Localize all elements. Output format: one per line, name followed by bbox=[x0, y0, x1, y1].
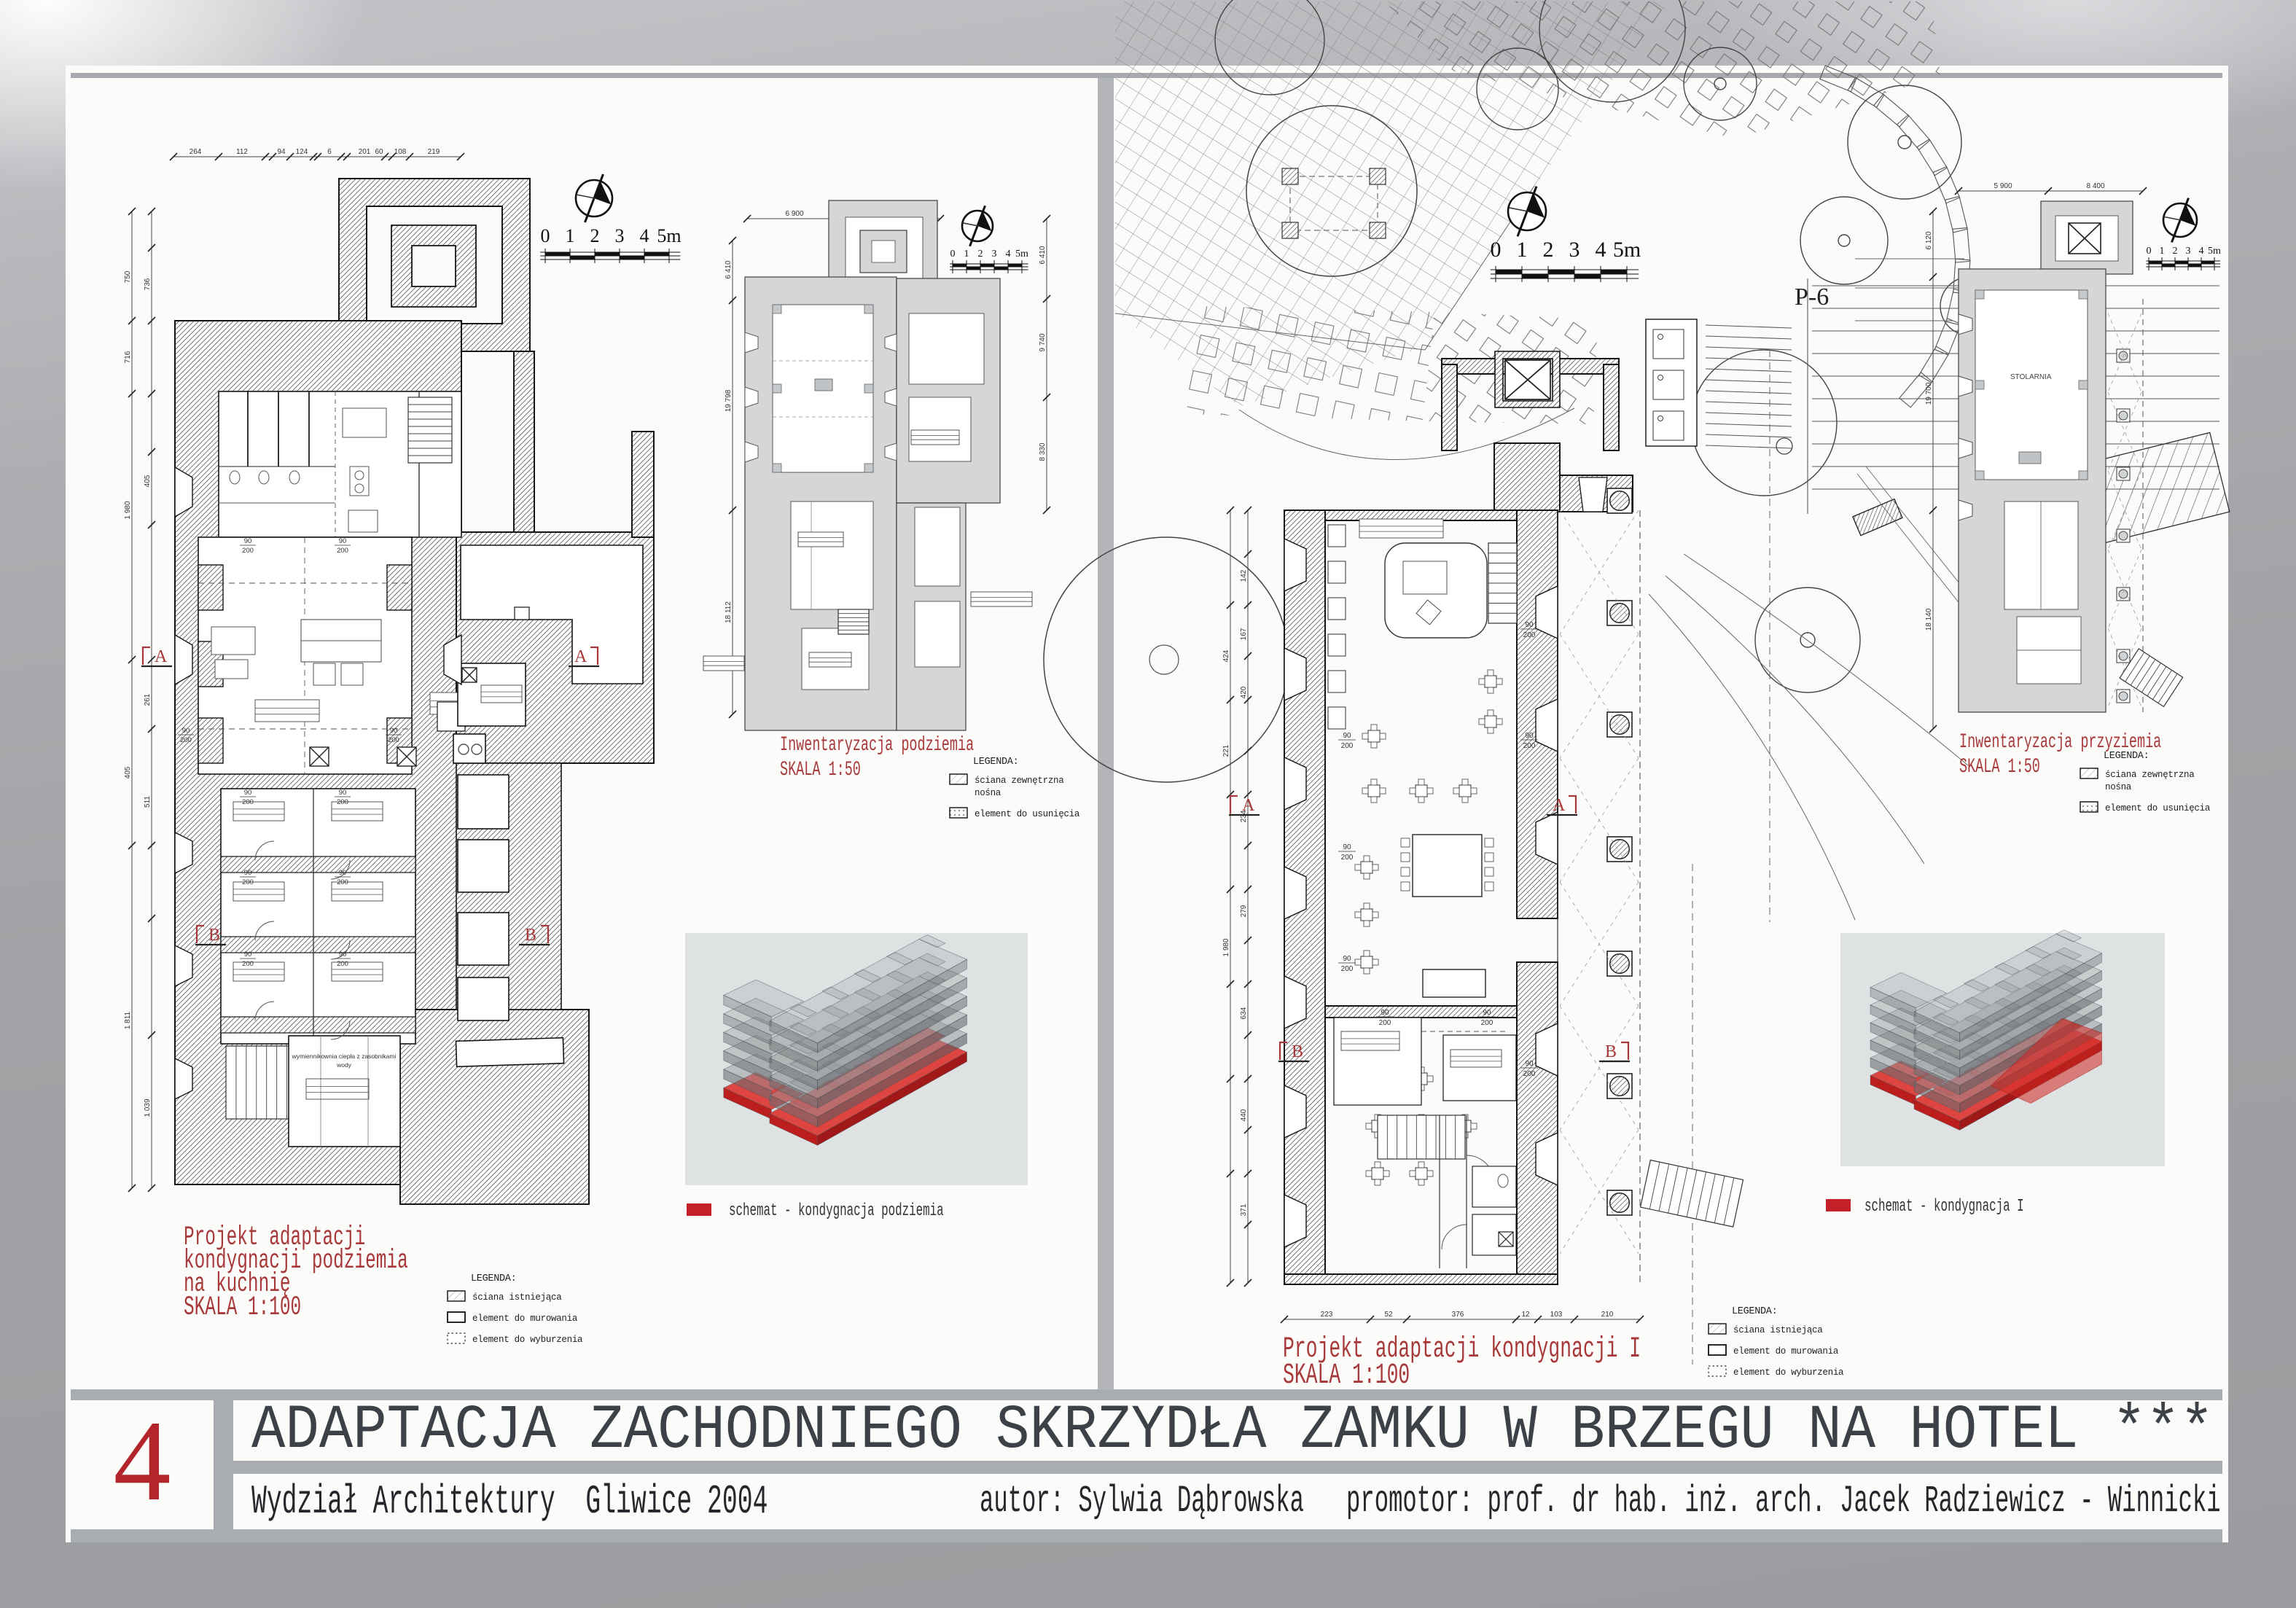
svg-text:200: 200 bbox=[1481, 1019, 1493, 1027]
svg-text:90: 90 bbox=[339, 789, 347, 797]
svg-text:4: 4 bbox=[1006, 249, 1011, 259]
svg-text:376: 376 bbox=[1452, 1311, 1464, 1319]
svg-text:A: A bbox=[574, 647, 587, 666]
svg-text:5m: 5m bbox=[657, 225, 681, 246]
svg-text:1 811: 1 811 bbox=[124, 1011, 132, 1029]
svg-text:5 900: 5 900 bbox=[1994, 182, 2012, 190]
svg-text:B: B bbox=[525, 926, 536, 945]
svg-text:219: 219 bbox=[428, 148, 440, 156]
svg-text:B: B bbox=[1605, 1042, 1617, 1061]
svg-text:1: 1 bbox=[964, 249, 969, 259]
svg-text:200: 200 bbox=[242, 960, 254, 968]
svg-text:19 798: 19 798 bbox=[725, 389, 733, 412]
svg-text:52: 52 bbox=[1384, 1311, 1393, 1319]
svg-text:90: 90 bbox=[244, 537, 252, 545]
svg-text:0: 0 bbox=[2147, 246, 2152, 257]
svg-text:1 980: 1 980 bbox=[124, 501, 132, 519]
svg-text:405: 405 bbox=[144, 475, 152, 487]
svg-text:element do murowania: element do murowania bbox=[472, 1314, 578, 1324]
svg-text:5m: 5m bbox=[1015, 249, 1028, 259]
svg-text:750: 750 bbox=[124, 270, 132, 283]
svg-text:19 700: 19 700 bbox=[1925, 382, 1933, 405]
svg-text:200: 200 bbox=[242, 878, 254, 886]
svg-text:element do usunięcia: element do usunięcia bbox=[975, 809, 1080, 819]
svg-text:716: 716 bbox=[124, 351, 132, 363]
svg-text:P-6: P-6 bbox=[1795, 284, 1829, 311]
svg-text:221: 221 bbox=[1222, 744, 1230, 757]
svg-text:1: 1 bbox=[2160, 246, 2165, 257]
svg-text:200: 200 bbox=[337, 878, 348, 886]
svg-text:108: 108 bbox=[394, 148, 407, 156]
svg-text:90: 90 bbox=[1381, 1009, 1389, 1017]
svg-text:ściana istniejąca: ściana istniejąca bbox=[472, 1292, 562, 1303]
svg-text:200: 200 bbox=[1341, 965, 1354, 973]
svg-text:90: 90 bbox=[244, 789, 252, 797]
svg-text:94: 94 bbox=[277, 148, 286, 156]
svg-text:nośna: nośna bbox=[975, 788, 1001, 798]
svg-text:18 112: 18 112 bbox=[725, 601, 733, 623]
svg-text:200: 200 bbox=[242, 547, 254, 555]
svg-text:A: A bbox=[1553, 796, 1566, 815]
svg-text:200: 200 bbox=[1379, 1019, 1391, 1027]
svg-text:element do wyburzenia: element do wyburzenia bbox=[1733, 1367, 1844, 1378]
svg-text:element do usunięcia: element do usunięcia bbox=[2105, 803, 2211, 813]
svg-text:0: 0 bbox=[950, 249, 956, 259]
svg-text:4: 4 bbox=[2199, 246, 2204, 257]
svg-text:200: 200 bbox=[1341, 742, 1354, 750]
svg-text:1: 1 bbox=[1517, 238, 1528, 262]
svg-text:8 330: 8 330 bbox=[1039, 442, 1047, 461]
svg-text:90: 90 bbox=[182, 727, 190, 735]
svg-text:142: 142 bbox=[1240, 569, 1248, 582]
svg-text:90: 90 bbox=[339, 537, 347, 545]
svg-text:8 400: 8 400 bbox=[2086, 182, 2104, 190]
svg-text:167: 167 bbox=[1240, 628, 1248, 640]
svg-text:124: 124 bbox=[296, 148, 308, 156]
svg-text:18 140: 18 140 bbox=[1925, 608, 1933, 631]
svg-text:200: 200 bbox=[388, 736, 399, 744]
svg-text:736: 736 bbox=[144, 278, 152, 290]
svg-text:634: 634 bbox=[1240, 1007, 1248, 1019]
svg-text:1 039: 1 039 bbox=[144, 1098, 152, 1117]
svg-text:200: 200 bbox=[337, 798, 348, 806]
svg-text:0: 0 bbox=[1491, 238, 1502, 262]
svg-text:12: 12 bbox=[1521, 1311, 1530, 1319]
svg-text:4: 4 bbox=[1596, 238, 1606, 262]
svg-text:LEGENDA:: LEGENDA: bbox=[1732, 1306, 1777, 1317]
svg-text:2: 2 bbox=[978, 249, 983, 259]
svg-text:261: 261 bbox=[144, 693, 152, 706]
svg-text:wymiennikownia ciepła z zasobn: wymiennikownia ciepła z zasobnikami bbox=[292, 1053, 397, 1060]
svg-text:200: 200 bbox=[1523, 1070, 1536, 1078]
svg-text:371: 371 bbox=[1240, 1203, 1248, 1216]
svg-text:90: 90 bbox=[390, 727, 398, 735]
svg-text:90: 90 bbox=[1343, 955, 1351, 963]
svg-text:nośna: nośna bbox=[2105, 782, 2132, 792]
svg-text:9 740: 9 740 bbox=[1039, 333, 1047, 351]
svg-text:A: A bbox=[1242, 796, 1255, 815]
svg-text:2: 2 bbox=[1543, 238, 1554, 262]
svg-text:6: 6 bbox=[327, 148, 332, 156]
svg-text:ściana zewnętrzna: ściana zewnętrzna bbox=[975, 776, 1064, 786]
svg-text:90: 90 bbox=[1525, 621, 1534, 629]
svg-text:90: 90 bbox=[1525, 1060, 1534, 1068]
svg-text:5m: 5m bbox=[2208, 246, 2221, 257]
svg-text:B: B bbox=[1292, 1042, 1303, 1061]
svg-text:wody: wody bbox=[336, 1061, 352, 1069]
svg-text:2: 2 bbox=[2173, 246, 2178, 257]
svg-text:223: 223 bbox=[1321, 1311, 1333, 1319]
svg-text:90: 90 bbox=[1525, 732, 1534, 740]
svg-text:6 410: 6 410 bbox=[725, 260, 733, 278]
svg-text:103: 103 bbox=[1550, 1311, 1563, 1319]
svg-text:200: 200 bbox=[337, 960, 348, 968]
svg-text:200: 200 bbox=[337, 547, 348, 555]
svg-text:A: A bbox=[155, 647, 168, 666]
svg-text:0: 0 bbox=[541, 225, 550, 246]
svg-text:420: 420 bbox=[1240, 686, 1248, 698]
svg-text:200: 200 bbox=[1523, 742, 1536, 750]
svg-text:3: 3 bbox=[615, 225, 625, 246]
svg-text:200: 200 bbox=[180, 736, 192, 744]
svg-text:90: 90 bbox=[1483, 1009, 1491, 1017]
svg-text:210: 210 bbox=[1601, 1311, 1614, 1319]
svg-text:200: 200 bbox=[1341, 854, 1354, 862]
svg-text:264: 264 bbox=[190, 148, 202, 156]
svg-text:201: 201 bbox=[359, 148, 371, 156]
svg-text:1: 1 bbox=[566, 225, 575, 246]
svg-text:3: 3 bbox=[992, 249, 997, 259]
svg-text:LEGENDA:: LEGENDA: bbox=[973, 757, 1018, 768]
svg-text:3: 3 bbox=[2186, 246, 2191, 257]
svg-text:ściana istniejąca: ściana istniejąca bbox=[1733, 1325, 1823, 1335]
svg-text:424: 424 bbox=[1222, 649, 1230, 662]
svg-text:element do murowania: element do murowania bbox=[1733, 1346, 1839, 1357]
svg-text:1 980: 1 980 bbox=[1222, 938, 1230, 956]
svg-text:6 410: 6 410 bbox=[1039, 246, 1047, 264]
svg-text:6 900: 6 900 bbox=[785, 210, 803, 218]
svg-text:112: 112 bbox=[236, 148, 248, 156]
svg-text:90: 90 bbox=[244, 951, 252, 959]
svg-text:90: 90 bbox=[244, 869, 252, 877]
svg-text:LEGENDA:: LEGENDA: bbox=[471, 1273, 516, 1284]
svg-text:6 120: 6 120 bbox=[1925, 231, 1933, 249]
svg-text:90: 90 bbox=[339, 869, 347, 877]
svg-text:405: 405 bbox=[124, 766, 132, 778]
svg-text:element do wyburzenia: element do wyburzenia bbox=[472, 1335, 583, 1345]
svg-text:5m: 5m bbox=[1613, 238, 1641, 262]
svg-text:90: 90 bbox=[1343, 732, 1351, 740]
svg-text:STOLARNIA: STOLARNIA bbox=[2010, 373, 2052, 381]
svg-text:440: 440 bbox=[1240, 1109, 1248, 1121]
svg-text:511: 511 bbox=[144, 796, 152, 808]
svg-text:4: 4 bbox=[640, 225, 649, 246]
svg-text:3: 3 bbox=[1569, 238, 1580, 262]
svg-text:B: B bbox=[208, 926, 220, 945]
svg-text:60: 60 bbox=[375, 148, 383, 156]
svg-text:200: 200 bbox=[242, 798, 254, 806]
svg-text:279: 279 bbox=[1240, 905, 1248, 917]
svg-text:90: 90 bbox=[1343, 843, 1351, 851]
svg-text:200: 200 bbox=[1523, 631, 1536, 639]
svg-text:90: 90 bbox=[339, 951, 347, 959]
svg-text:2: 2 bbox=[590, 225, 600, 246]
